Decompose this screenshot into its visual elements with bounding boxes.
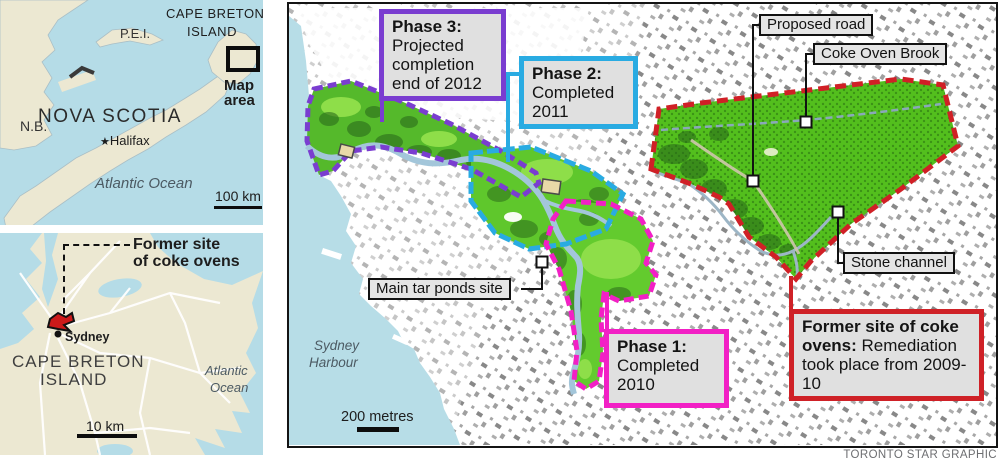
- stone-channel-marker: [833, 207, 844, 218]
- label-pei: P.E.I.: [120, 26, 150, 41]
- label-halifax: Halifax: [110, 133, 150, 148]
- phase1-line1: Completed: [617, 356, 716, 375]
- callout-leader-horizontal: [63, 244, 130, 246]
- label-cape-breton-1: CAPE BRETON: [12, 352, 145, 372]
- label-former-site-1: Former site: [133, 236, 220, 254]
- phase2-title: Phase 2:: [532, 64, 625, 83]
- label-former-site-2: of coke ovens: [133, 253, 240, 271]
- credit-line: TORONTO STAR GRAPHIC: [843, 449, 997, 461]
- label-sydney-harbour-2: Harbour: [309, 355, 358, 370]
- coke-brook-label: Coke Oven Brook: [813, 43, 947, 65]
- phase3-building: [338, 144, 354, 158]
- graphic-canvas: N.B. P.E.I. CAPE BRETON ISLAND Map area …: [0, 0, 1000, 466]
- label-cape-breton-island-1: CAPE BRETON: [166, 6, 264, 21]
- coke-ovens-callout: Former site of coke ovens: Remediation t…: [789, 309, 984, 401]
- inset-map-nova-scotia: N.B. P.E.I. CAPE BRETON ISLAND Map area …: [0, 0, 263, 225]
- callout-leader-vertical: [63, 244, 65, 314]
- phase3-title: Phase 3:: [392, 17, 493, 36]
- label-cape-breton-island-2: ISLAND: [187, 24, 237, 39]
- label-atlantic-ocean: Atlantic Ocean: [95, 175, 193, 192]
- scale-bar-10km: [77, 434, 137, 438]
- phase1-title: Phase 1:: [617, 337, 716, 356]
- phase1-line2: 2010: [617, 375, 716, 394]
- label-sydney: Sydney: [65, 330, 109, 344]
- map-area-box: [226, 46, 260, 72]
- label-scale-200m: 200 metres: [341, 409, 414, 425]
- label-atlantic-1: Atlantic: [205, 363, 248, 378]
- label-nova-scotia: NOVA SCOTIA: [38, 106, 182, 128]
- halifax-star-icon: ★: [100, 136, 110, 148]
- phase2-callout: Phase 2: Completed 2011: [519, 56, 638, 129]
- main-map: Phase 3: Projected completion end of 201…: [287, 2, 998, 448]
- proposed-road-label: Proposed road: [759, 14, 873, 36]
- sydney-dot: [55, 331, 62, 338]
- tar-ponds-marker: [537, 257, 548, 268]
- phase2-line1: Completed: [532, 83, 625, 102]
- label-scale-100km: 100 km: [215, 188, 261, 204]
- label-ocean-2: Ocean: [210, 380, 248, 395]
- inset-map-cape-breton: Former site of coke ovens Sydney CAPE BR…: [0, 233, 263, 455]
- stone-channel-label: Stone channel: [843, 252, 955, 274]
- coke-brook-marker: [801, 117, 812, 128]
- phase2-line2: 2011: [532, 102, 625, 121]
- label-cape-breton-2: ISLAND: [40, 370, 107, 390]
- label-scale-10km: 10 km: [86, 418, 124, 434]
- scale-bar-100km: [214, 206, 262, 209]
- lake-speck: [28, 168, 32, 172]
- phase1-callout: Phase 1: Completed 2010: [604, 329, 729, 408]
- phase3-line3: end of 2012: [392, 74, 493, 93]
- label-sydney-harbour-1: Sydney: [314, 338, 359, 353]
- phase3-line1: Projected: [392, 36, 493, 55]
- phase3-callout: Phase 3: Projected completion end of 201…: [379, 9, 506, 101]
- label-map-area-2: area: [224, 92, 255, 109]
- tar-ponds-label: Main tar ponds site: [368, 278, 511, 300]
- scale-bar-200m: [357, 427, 399, 432]
- phase3-line2: completion: [392, 55, 493, 74]
- proposed-road-marker: [748, 176, 759, 187]
